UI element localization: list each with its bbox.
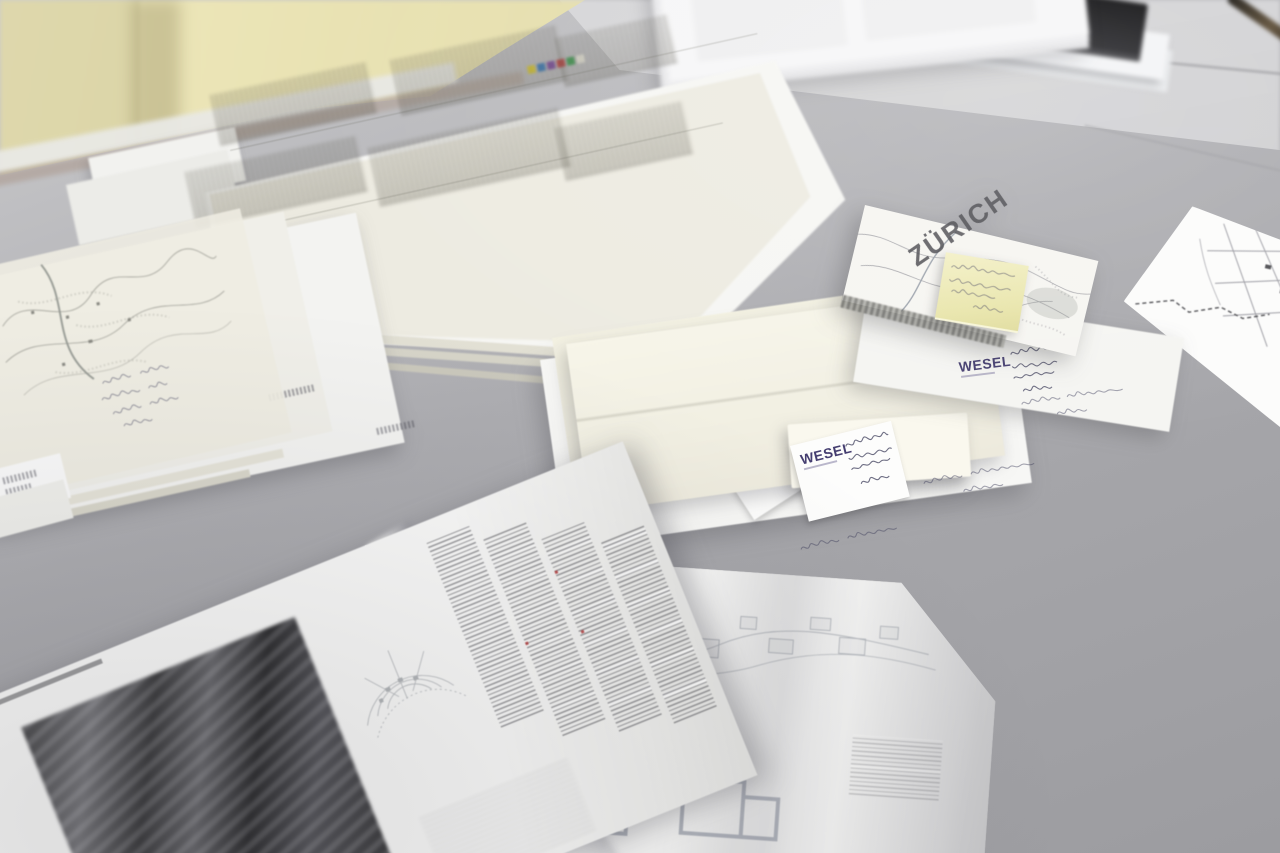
- wesel-logo: WESEL: [958, 353, 1012, 375]
- handwriting-on-label: [842, 428, 904, 502]
- tiny-slip-text-1: [2, 470, 37, 485]
- sticky-note-writing: [942, 259, 1022, 322]
- stamp-mark-2: [376, 420, 417, 435]
- sticky-note: [935, 252, 1029, 333]
- left-page-sketch-hint: [418, 755, 596, 853]
- photo-scene: WESEL WESEL WESEL: [0, 0, 1280, 853]
